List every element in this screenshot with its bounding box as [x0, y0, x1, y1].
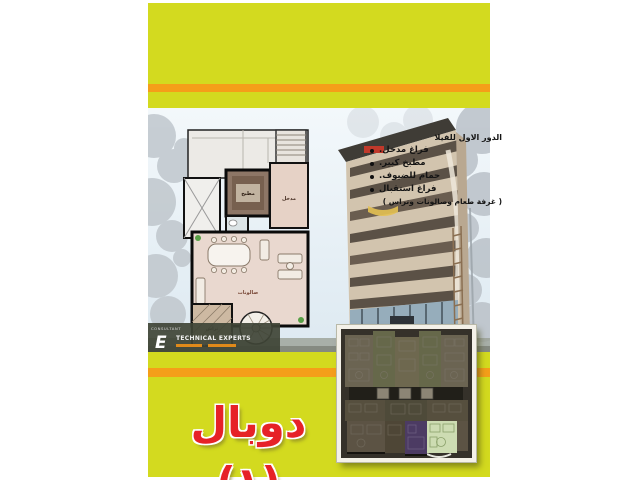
floor-plan: مطبخ مدخل صالونا	[184, 130, 308, 346]
list-item-label: فراغ استقبال	[379, 185, 436, 194]
bullet-icon	[370, 162, 374, 166]
list-item-label: مطبخ كبير.	[379, 159, 426, 168]
list-item: حمام للضيوف.	[370, 172, 502, 181]
siteplan-units-bottom	[347, 421, 468, 455]
salons-label: صالونات	[238, 290, 259, 296]
company-name: TECHNICAL EXPERTS	[176, 335, 251, 342]
siteplan-image	[341, 329, 472, 458]
bullet-icon	[370, 175, 374, 179]
list-item: فراغ استقبال	[370, 185, 502, 194]
list-item-label: فراغ مدخل.	[379, 146, 429, 155]
yellow-panel: مطبخ مدخل صالونا	[148, 3, 490, 477]
list-item-label: حمام للضيوف.	[379, 172, 440, 181]
consultant-logo-band: CONSULTANT E TECHNICAL EXPERTS	[148, 323, 280, 352]
project-title: دوبال (١)	[156, 393, 341, 480]
orange-stripe-top	[148, 84, 490, 92]
consultant-label: CONSULTANT	[151, 326, 181, 331]
dining-table	[208, 244, 250, 266]
feature-list: الدور الاول للفيلا فراغ مدخل. مطبخ كبير.…	[370, 133, 502, 206]
kitchen-label: مطبخ	[241, 191, 255, 197]
list-heading: الدور الاول للفيلا	[426, 133, 502, 142]
list-note: ( غرفة طعام وصالونات وتراس )	[368, 197, 502, 206]
entrance-label: مدخل	[282, 196, 296, 202]
logo-letter-e: E	[155, 333, 167, 352]
list-item: فراغ مدخل.	[370, 146, 502, 155]
list-item: مطبخ كبير.	[370, 159, 502, 168]
siteplan-cores	[377, 388, 433, 399]
siteplan-frame	[337, 325, 476, 462]
brochure-page: مطبخ مدخل صالونا	[0, 0, 640, 480]
bullet-icon	[370, 188, 374, 192]
bullet-icon	[370, 149, 374, 153]
siteplan-units-middle	[345, 400, 468, 421]
